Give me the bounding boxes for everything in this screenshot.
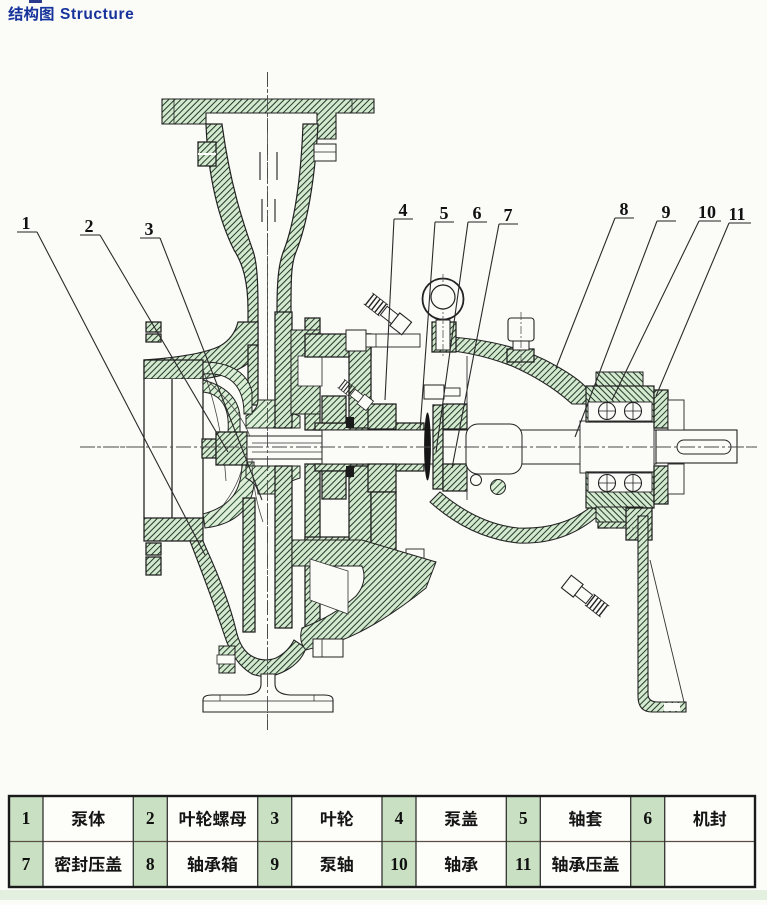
svg-text:1: 1 bbox=[22, 213, 31, 233]
svg-text:9: 9 bbox=[662, 202, 671, 222]
svg-text:10: 10 bbox=[390, 854, 408, 874]
svg-text:4: 4 bbox=[399, 200, 408, 220]
svg-text:5: 5 bbox=[440, 203, 449, 223]
svg-text:11: 11 bbox=[515, 854, 532, 874]
svg-text:8: 8 bbox=[146, 854, 155, 874]
svg-text:4: 4 bbox=[395, 808, 404, 828]
svg-text:3: 3 bbox=[270, 808, 279, 828]
svg-text:2: 2 bbox=[146, 808, 155, 828]
svg-text:5: 5 bbox=[519, 808, 528, 828]
svg-text:1: 1 bbox=[22, 808, 31, 828]
svg-text:8: 8 bbox=[620, 199, 629, 219]
svg-text:6: 6 bbox=[643, 808, 652, 828]
svg-text:2: 2 bbox=[85, 216, 94, 236]
svg-text:9: 9 bbox=[270, 854, 279, 874]
svg-text:Structure: Structure bbox=[60, 6, 134, 23]
svg-text:3: 3 bbox=[145, 219, 154, 239]
svg-text:10: 10 bbox=[698, 202, 716, 222]
svg-text:7: 7 bbox=[22, 854, 31, 874]
svg-text:11: 11 bbox=[728, 204, 745, 224]
svg-text:7: 7 bbox=[504, 205, 513, 225]
svg-text:6: 6 bbox=[473, 203, 482, 223]
